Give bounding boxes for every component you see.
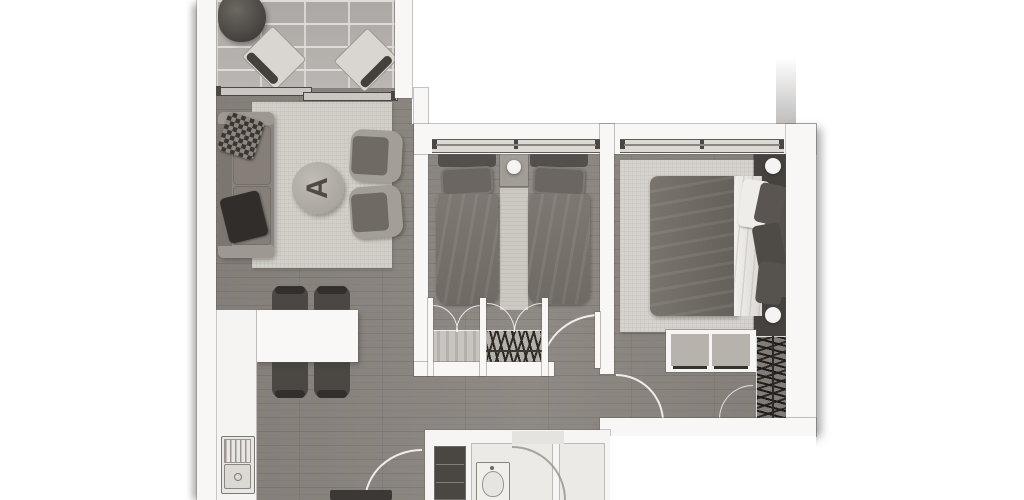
coffee-table-icon: A [292, 162, 344, 214]
master-bedroom-window [620, 139, 784, 153]
bed-headboard [438, 152, 496, 167]
dresser-cell [712, 334, 750, 366]
closet-wall [428, 298, 433, 376]
coffee-table-monogram: A [292, 162, 344, 214]
sink-basin [224, 464, 251, 489]
bed-pillow [440, 166, 493, 197]
twin-runner-rug [500, 188, 528, 310]
floor-plan-canvas: A [0, 0, 1024, 500]
faucet-dot [490, 466, 494, 470]
master-pillow-dark [755, 261, 785, 305]
wall-master-south [600, 418, 816, 436]
dresser-handle [673, 366, 707, 369]
bed-pillow [532, 166, 585, 197]
refrigerator-cabinet-icon [434, 446, 466, 500]
dresser-cell [671, 334, 709, 366]
twin-bedroom-window [432, 139, 600, 153]
exterior-wall-left [197, 0, 216, 500]
exterior-space [412, 0, 816, 124]
wall-between-bedrooms [600, 124, 614, 374]
armchair-seat [351, 192, 390, 232]
chair-back [275, 286, 305, 294]
entry-shoe-cabinet [330, 490, 392, 500]
armchair-icon [349, 129, 404, 184]
cabinet-shelf-line [436, 482, 464, 483]
sliding-door-panel [303, 92, 398, 101]
bed-blanket [528, 194, 590, 304]
sofa-armrest [218, 245, 274, 258]
window-glass-line [624, 144, 780, 146]
bathroom-doorway [512, 431, 564, 444]
shower-area-floor [560, 444, 604, 500]
chair-back [317, 390, 347, 398]
bedroom-door-leaf [595, 312, 600, 368]
master-dresser [666, 330, 756, 372]
basin-bowl [482, 471, 504, 497]
window-glass-line [436, 144, 596, 146]
kitchen-sink-icon [221, 436, 255, 494]
master-bed-blanket [650, 176, 738, 316]
closet-wall [542, 298, 548, 376]
balcony-wall-right [395, 0, 412, 98]
sink-drain [234, 473, 242, 481]
single-bed-left [436, 150, 498, 304]
table-lamp-icon [765, 307, 781, 323]
chair-back [275, 390, 305, 398]
armchair-icon [348, 184, 404, 240]
exterior-wall-right [786, 124, 816, 436]
table-lamp-icon [765, 158, 781, 174]
closet-wall [480, 298, 486, 376]
wardrobe-rail [772, 336, 774, 426]
closet-rail [486, 350, 542, 352]
washbasin-icon [476, 462, 510, 500]
dining-table [256, 310, 358, 362]
bed-headboard [530, 152, 588, 167]
sink-drainboard [224, 439, 251, 463]
dresser-handle [714, 366, 748, 369]
table-lamp-icon [507, 160, 521, 174]
exterior-space [610, 436, 816, 500]
single-bed-right [528, 150, 590, 304]
chair-back [317, 286, 347, 294]
sliding-door-panel [217, 87, 312, 96]
sliding-door-cap [216, 86, 221, 96]
cabinet-shelf-line [436, 464, 464, 465]
bed-blanket [436, 194, 498, 304]
armchair-seat [351, 136, 389, 176]
